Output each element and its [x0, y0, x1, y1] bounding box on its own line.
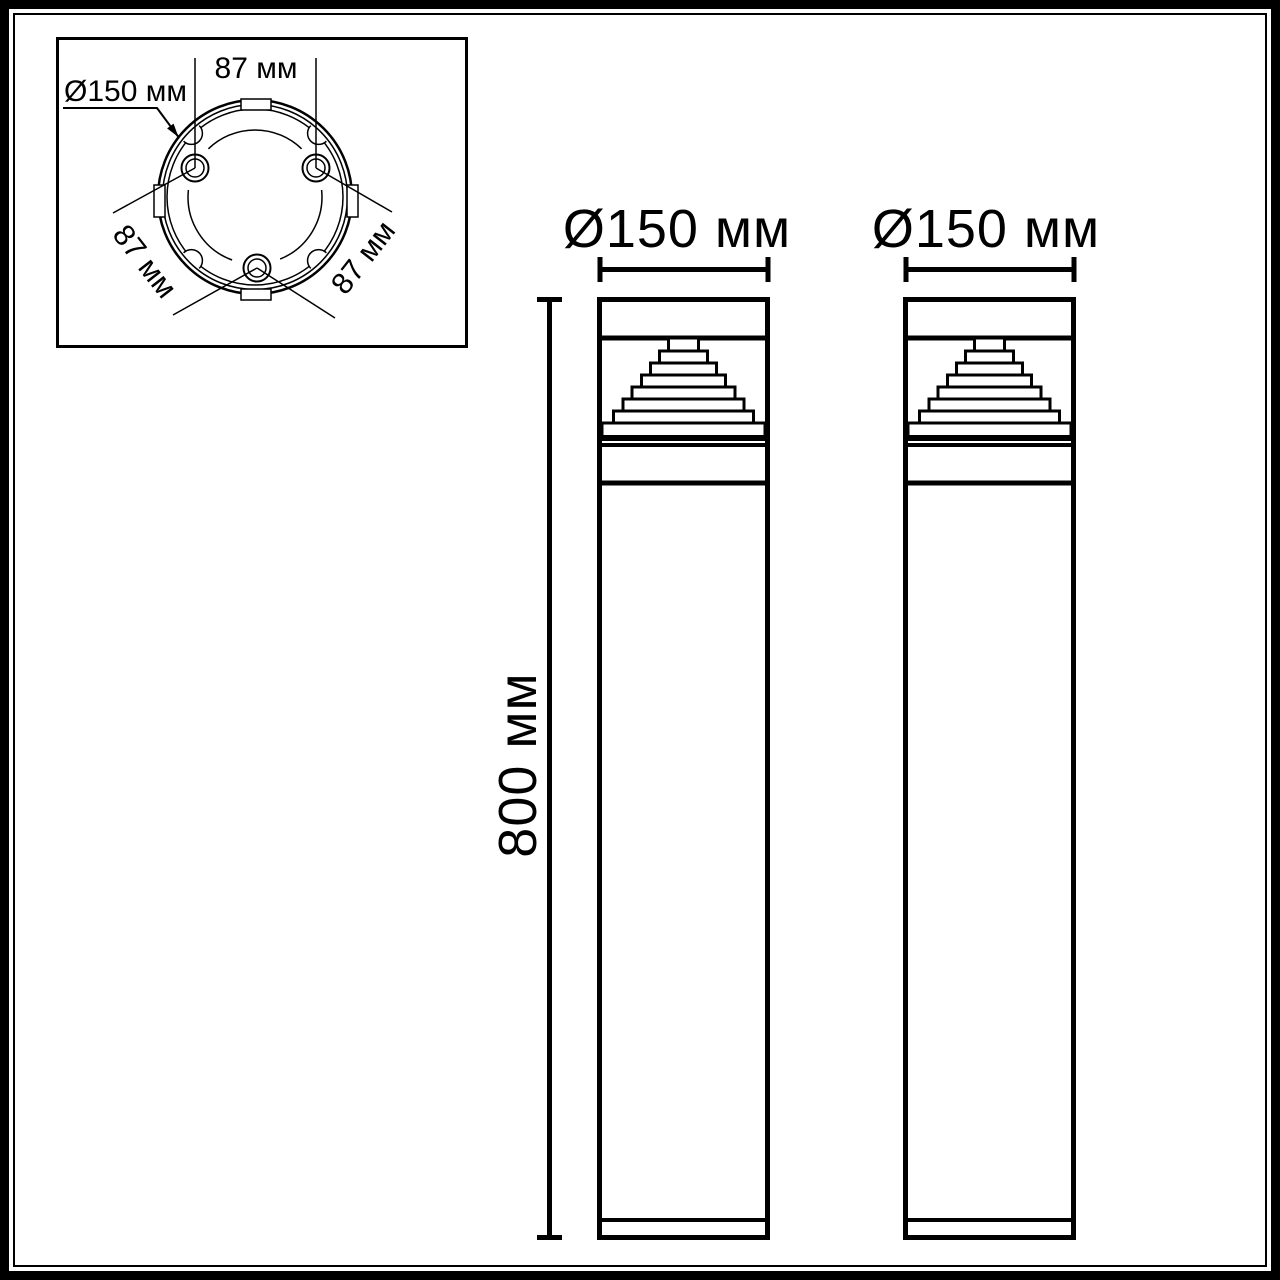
- technical-drawing: [0, 0, 1280, 1280]
- inner-plate-arcs: [188, 130, 322, 260]
- bollard-front-view-left: [597, 300, 770, 1238]
- inset-hole-spacing-top-label: 87 мм: [186, 52, 326, 86]
- bollard-front-view-right: [903, 300, 1076, 1238]
- diameter-label-left: Ø150 мм: [527, 200, 827, 258]
- inset-plate-diameter-label: Ø150 мм: [64, 76, 187, 108]
- diameter-label-right: Ø150 мм: [836, 200, 1136, 258]
- rim-bumps: [184, 126, 327, 269]
- dim-diameter-left: [600, 257, 768, 282]
- drawing-page: Ø150 мм Ø150 мм 800 мм 87 мм Ø150 мм 87 …: [0, 0, 1280, 1280]
- dim-diameter-right: [906, 257, 1074, 282]
- diameter-leader: [63, 108, 179, 137]
- height-label: 800 мм: [488, 665, 548, 865]
